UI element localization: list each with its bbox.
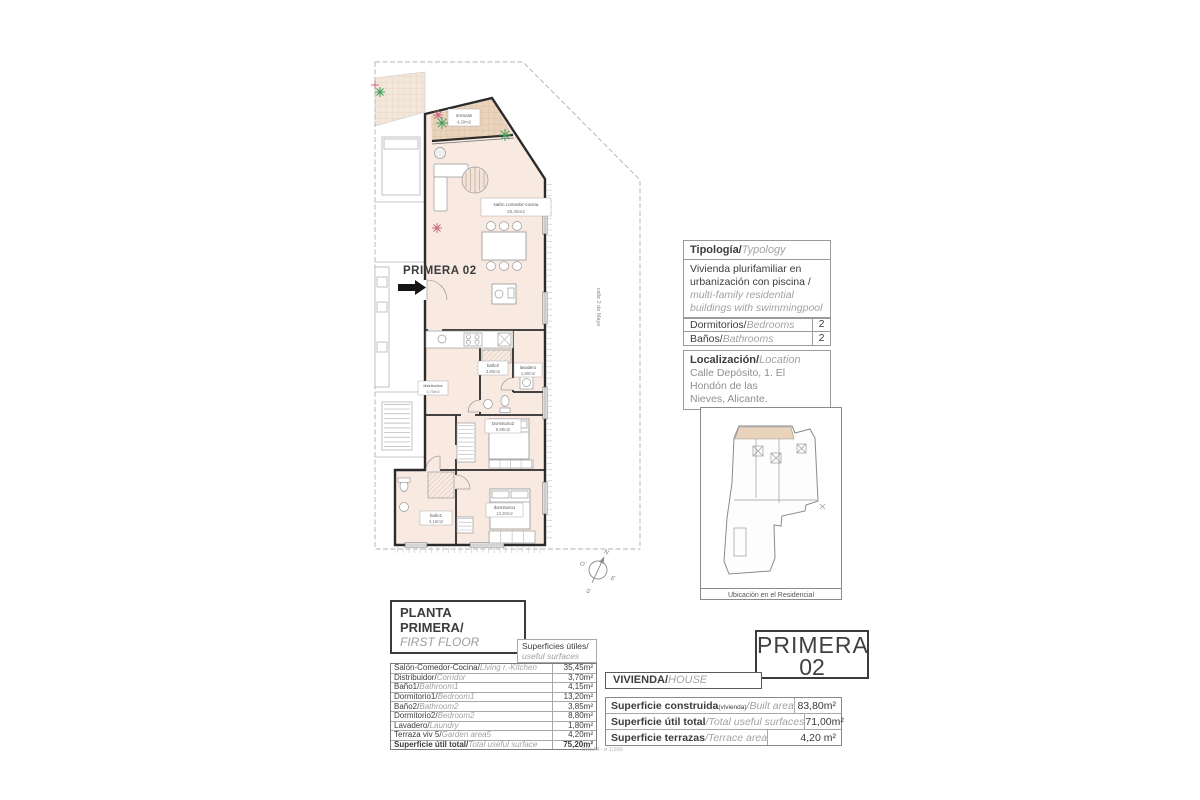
- room-label-terraza-name: terraza5: [456, 113, 472, 118]
- floor-title-box: PLANTA PRIMERA/ FIRST FLOOR: [390, 600, 526, 654]
- room-label-salon-name: salón comedor-cocina: [494, 202, 539, 207]
- room-label-dormitorio2-area: 8,80m2: [496, 427, 511, 432]
- bathrooms-count: 2: [812, 332, 830, 345]
- typology-header-en: Typology: [742, 244, 786, 256]
- room-label-bano2: baño2 3,85m2: [478, 361, 508, 375]
- typology-body-es: Vivienda plurifamiliar en urbanización c…: [690, 263, 811, 288]
- room-label-bano1: baño1 4,15m2: [420, 511, 452, 525]
- siteplan-svg: [701, 408, 839, 583]
- room-label-distribuidor: distribuidor 3,70m2: [418, 381, 448, 395]
- entrance-gap: [423, 280, 427, 300]
- room-label-distribuidor-area: 3,70m2: [426, 389, 440, 394]
- unit-card-box: PRIMERA 02: [755, 630, 869, 679]
- siteplan-caption: Ubicación en el Residencial: [701, 588, 841, 602]
- room-label-distribuidor-name: distribuidor: [423, 383, 443, 388]
- rooms-count-table: Dormitorios/Bedrooms 2 Baños/Bathrooms 2: [683, 317, 831, 346]
- table-row: Dormitorio1/Bedroom113,20m²: [391, 692, 596, 702]
- scale-footnote: DIN A4 - e:1/100: [582, 747, 623, 753]
- bedrooms-count: 2: [812, 318, 830, 331]
- surfaces-col-header: Superficies útiles/ useful surfaces: [517, 639, 597, 663]
- entrance-arrow-icon: [398, 280, 426, 295]
- location-header: Localización/Location: [684, 351, 830, 367]
- compass-icon: N S E O: [572, 542, 628, 602]
- plan-unit-label: PRIMERA 02: [403, 265, 477, 277]
- areas-table: Superficie construida(vivienda)/Built ar…: [605, 697, 842, 746]
- street-label: calle 2 de Mayo: [595, 288, 601, 327]
- bedrooms-label-es: Dormitorios/: [690, 319, 747, 331]
- room-label-dormitorio2-name: Dormitorio2: [492, 421, 515, 426]
- typology-box: Tipología/Typology Vivienda plurifamilia…: [683, 240, 831, 319]
- floorplan-sheet: terraza5 4,20m2 salón comedor-cocina 35,…: [0, 0, 1200, 800]
- vivienda-label-es: VIVIENDA/: [613, 674, 668, 686]
- vivienda-label-en: HOUSE: [668, 674, 707, 686]
- room-label-lavadero: lavadero 1,80m2: [514, 363, 542, 377]
- room-label-bano2-area: 3,85m2: [486, 369, 501, 374]
- room-label-terraza-area: 4,20m2: [457, 120, 472, 125]
- location-header-es: Localización/: [690, 354, 759, 366]
- room-label-bano2-name: baño2: [487, 363, 500, 368]
- siteplan-box: Ubicación en el Residencial: [700, 407, 842, 600]
- table-row: Terraza viv 5/Garden area54,20m²: [391, 730, 596, 740]
- room-label-bano1-area: 4,15m2: [429, 519, 444, 524]
- surfaces-header-en: useful surfaces: [522, 651, 592, 661]
- compass-e: E: [609, 575, 616, 583]
- compass-s: S: [585, 588, 591, 595]
- compass-w: O: [578, 561, 585, 569]
- room-label-salon: salón comedor-cocina 35,45m2: [481, 198, 551, 216]
- room-label-lavadero-name: lavadero: [520, 365, 537, 370]
- table-row: Lavadero/Laundry1,80m²: [391, 721, 596, 731]
- surfaces-table: Salón-Comedor-Cocina/Living r.-Kitchen35…: [390, 663, 597, 750]
- room-label-lavadero-area: 1,80m2: [521, 371, 536, 376]
- location-box: Localización/Location Calle Depósito, 1.…: [683, 350, 831, 410]
- surfaces-header-es: Superficies útiles/: [522, 641, 592, 651]
- typology-body-en: multi-family residential buildings with …: [690, 289, 822, 314]
- typology-body: Vivienda plurifamiliar en urbanización c…: [684, 260, 830, 318]
- table-row-useful-area: Superficie útil total/Total useful surfa…: [606, 713, 841, 729]
- bathrooms-label-en: Bathrooms: [723, 333, 774, 345]
- room-label-dormitorio1-name: dormitorio1: [494, 505, 516, 510]
- table-row: Distribuidor/Corridor3,70m²: [391, 673, 596, 683]
- table-row: Salón-Comedor-Cocina/Living r.-Kitchen35…: [391, 664, 596, 673]
- room-label-dormitorio2: Dormitorio2 8,80m2: [485, 419, 521, 433]
- floorplan-svg: terraza5 4,20m2 salón comedor-cocina 35,…: [368, 52, 648, 562]
- table-row: Dormitorio2/Bedroom28,80m²: [391, 711, 596, 721]
- vivienda-bar: VIVIENDA/HOUSE: [605, 672, 762, 689]
- floor-title-es: PLANTA PRIMERA/: [400, 605, 516, 635]
- room-label-dormitorio1: dormitorio1 13,20m2: [486, 503, 523, 517]
- table-row-built-area: Superficie construida(vivienda)/Built ar…: [606, 698, 841, 713]
- table-row: Baño1/Bathroom14,15m²: [391, 682, 596, 692]
- location-header-en: Location: [759, 354, 801, 366]
- bathrooms-label-es: Baños/: [690, 333, 723, 345]
- table-row-total: Superficie útil total/Total useful surfa…: [391, 740, 596, 750]
- address-line1: Calle Depósito, 1. El Hondón de las: [690, 367, 824, 393]
- location-address: Calle Depósito, 1. El Hondón de las Niev…: [684, 367, 830, 409]
- unit-card-number: 02: [757, 657, 867, 678]
- table-row-bathrooms: Baños/Bathrooms 2: [684, 331, 830, 345]
- room-label-salon-area: 35,45m2: [507, 209, 525, 214]
- room-label-bano1-name: baño1: [430, 513, 443, 518]
- floor-title-en: FIRST FLOOR: [400, 635, 516, 649]
- siteplan-unit-highlight: [735, 427, 794, 439]
- bedrooms-label-en: Bedrooms: [747, 319, 795, 331]
- table-row-terrace-area: Superficie terrazas/Terrace area 4,20 m²: [606, 729, 841, 745]
- room-label-terraza: terraza5 4,20m2: [448, 109, 480, 126]
- room-label-dormitorio1-area: 13,20m2: [496, 511, 513, 516]
- table-row: Baño2/Bathroom23,85m²: [391, 701, 596, 711]
- typology-header: Tipología/Typology: [684, 241, 830, 260]
- address-line2: Nieves, Alicante.: [690, 393, 824, 406]
- compass-n: N: [603, 549, 610, 557]
- table-row-bedrooms: Dormitorios/Bedrooms 2: [684, 318, 830, 331]
- typology-header-es: Tipología/: [690, 244, 742, 256]
